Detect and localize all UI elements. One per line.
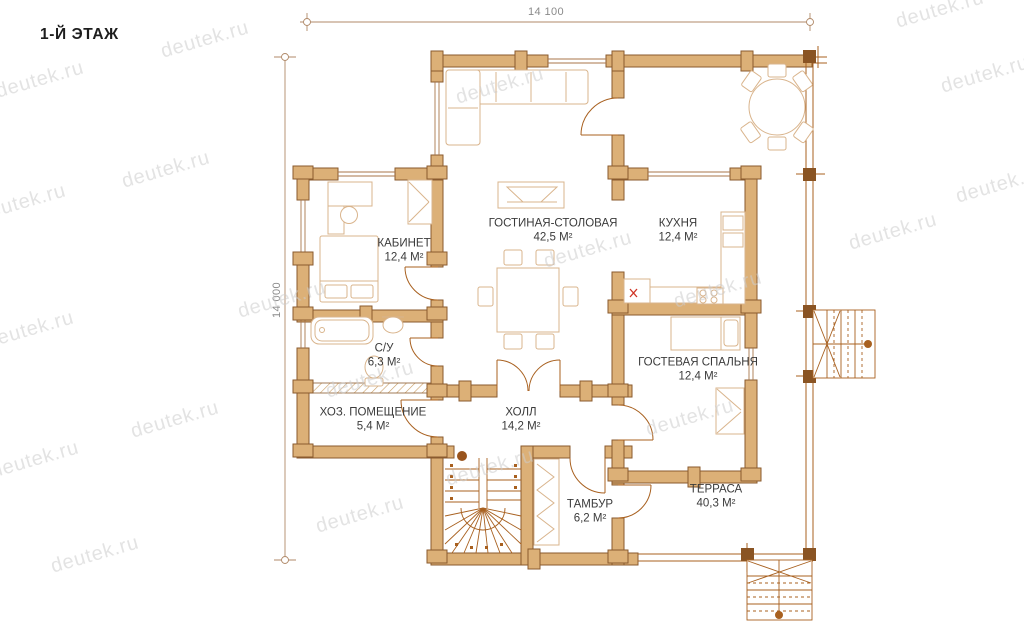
room-area: 40,3 М² — [690, 497, 742, 511]
exterior-steps-south — [747, 560, 812, 620]
room-label-living: ГОСТИНАЯ-СТОЛОВАЯ 42,5 М² — [489, 217, 618, 246]
room-name: ГОСТИНАЯ-СТОЛОВАЯ — [489, 218, 618, 230]
room-area: 6,2 М² — [567, 512, 613, 526]
floor-plan-page: 1-Й ЭТАЖ 14 100 14 000 — [0, 0, 1024, 631]
room-name: ТАМБУР — [567, 499, 613, 511]
room-label-office: КАБИНЕТ 12,4 М² — [377, 237, 430, 266]
room-name: С/У — [375, 343, 394, 355]
room-area: 12,4 М² — [659, 231, 698, 245]
room-area: 14,2 М² — [502, 420, 541, 434]
room-label-hall: ХОЛЛ 14,2 М² — [502, 406, 541, 435]
room-name: КАБИНЕТ — [377, 238, 430, 250]
main-staircase — [445, 451, 521, 553]
exterior-steps-east — [813, 310, 875, 378]
room-label-terrace: ТЕРРАСА 40,3 М² — [690, 483, 742, 512]
room-area: 42,5 М² — [489, 231, 618, 245]
room-label-vestibule: ТАМБУР 6,2 М² — [567, 498, 613, 527]
room-name: КУХНЯ — [659, 218, 697, 230]
room-label-guest-bedroom: ГОСТЕВАЯ СПАЛЬНЯ 12,4 М² — [638, 356, 758, 385]
room-label-kitchen: КУХНЯ 12,4 М² — [659, 217, 698, 246]
room-label-bathroom: С/У 6,3 М² — [368, 342, 401, 371]
room-area: 6,3 М² — [368, 356, 401, 370]
room-name: ХОЗ. ПОМЕЩЕНИЕ — [320, 407, 427, 419]
floor-plan-drawing — [0, 0, 1024, 631]
room-area: 12,4 М² — [638, 370, 758, 384]
room-name: ТЕРРАСА — [690, 484, 742, 496]
room-area: 12,4 М² — [377, 251, 430, 265]
room-name: ХОЛЛ — [505, 407, 536, 419]
room-name: ГОСТЕВАЯ СПАЛЬНЯ — [638, 357, 758, 369]
room-area: 5,4 М² — [320, 420, 427, 434]
room-label-utility: ХОЗ. ПОМЕЩЕНИЕ 5,4 М² — [320, 406, 427, 435]
